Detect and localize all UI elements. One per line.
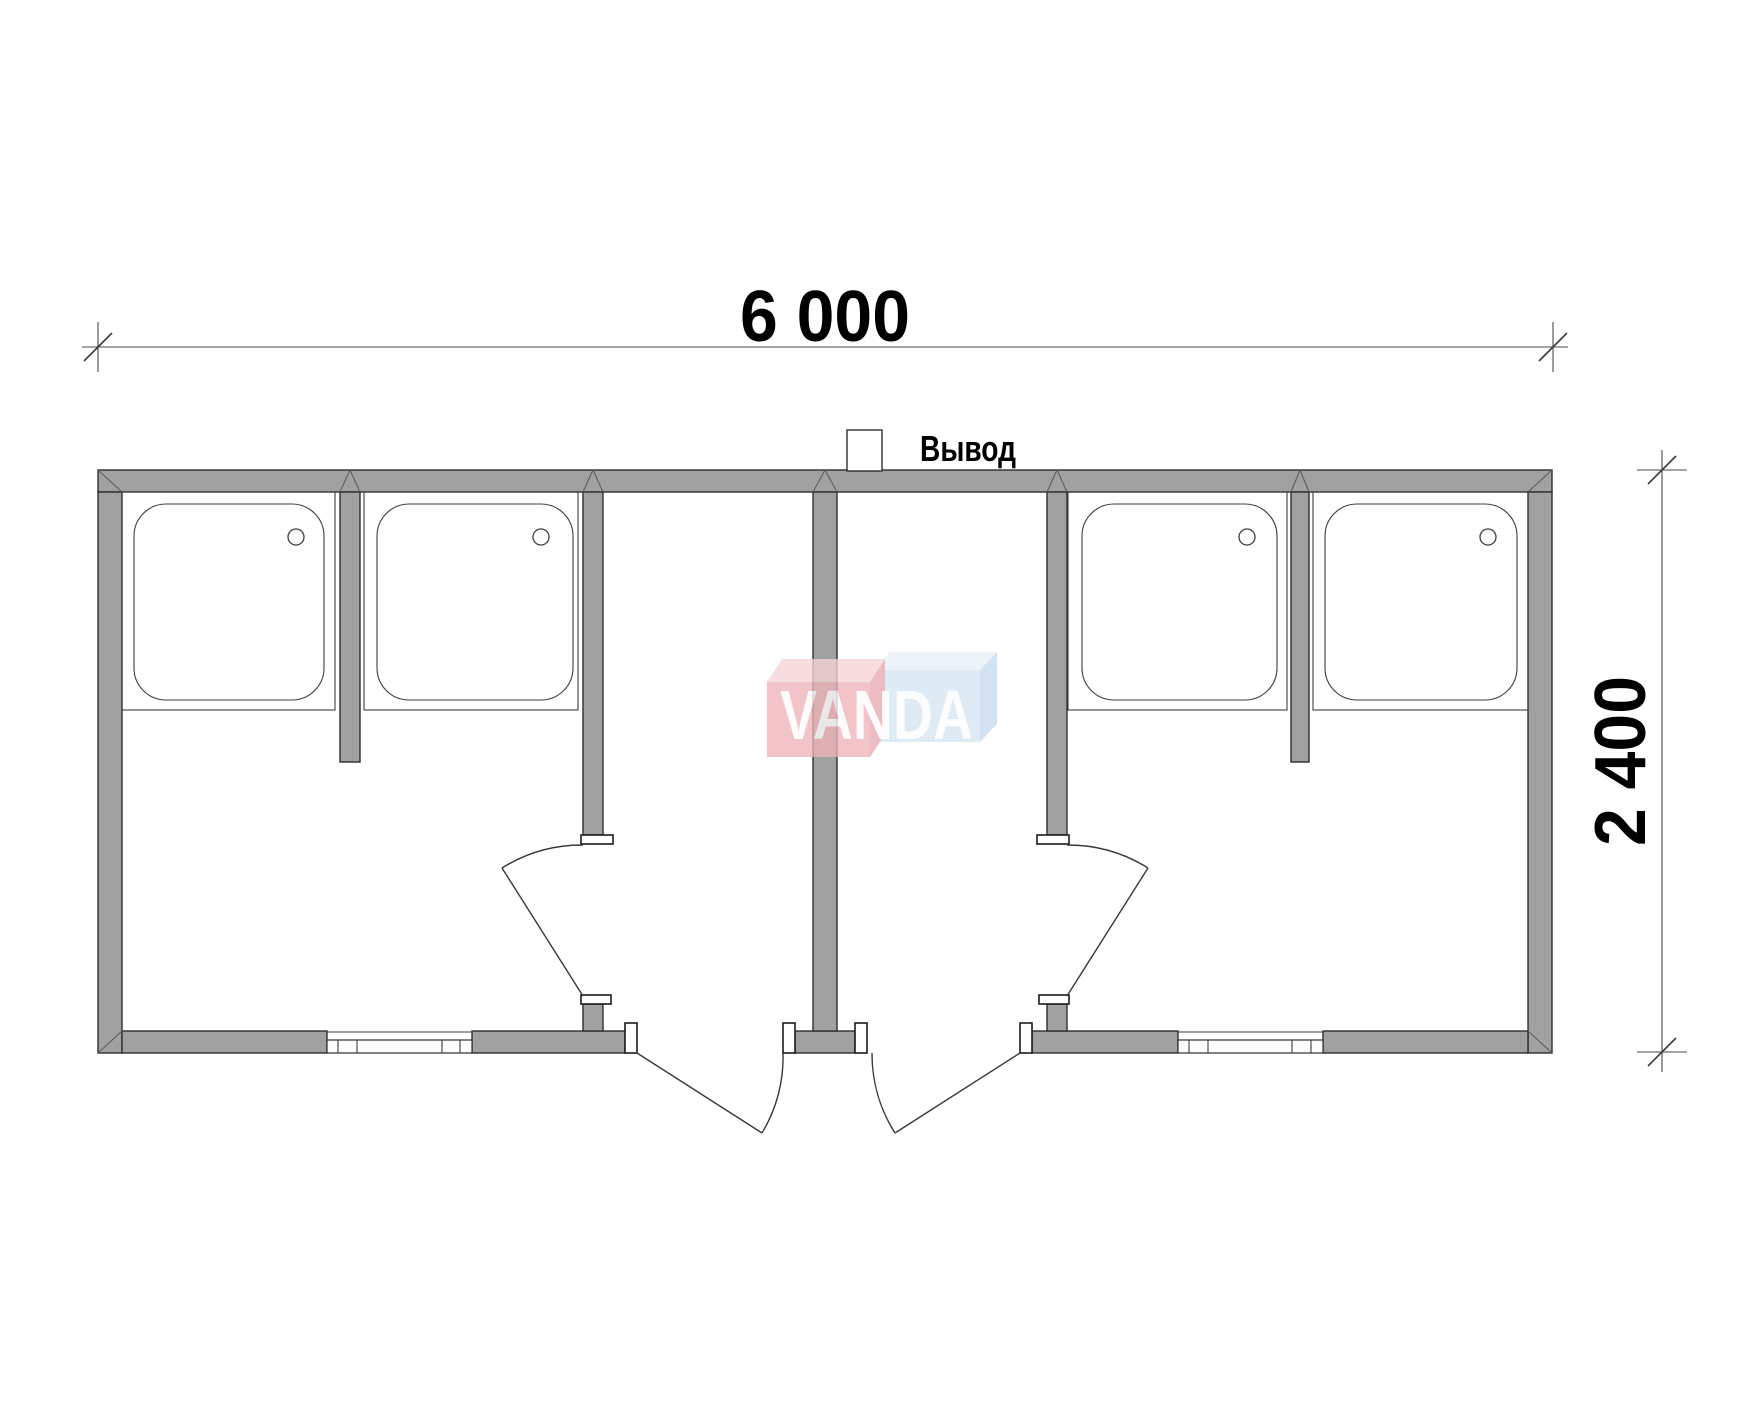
door-exterior-right-arc [872,1053,895,1133]
jamb-exterior-right-hinge [1020,1023,1032,1053]
door-exterior-right-leaf [895,1053,1020,1133]
door-exterior-left [637,1053,783,1133]
wall-partition-right-stub [1047,1004,1067,1031]
wall-shower-stub-right [1291,492,1309,762]
wall-right [1528,492,1552,1053]
wall-partition-right [1047,492,1067,835]
drain-icon-4 [1480,529,1496,545]
floor-plan-canvas: Вывод 6 000 2 400 VANDA [0,0,1763,1413]
logo-blue-top [873,652,997,670]
wall-bottom-seg2 [472,1031,625,1053]
wall-top [98,470,1552,492]
outlet-label: Вывод [920,428,1016,469]
dimension-height: 2 400 [1581,450,1687,1072]
wall-central [813,492,837,1031]
drain-icon-2 [533,529,549,545]
outlet: Вывод [847,428,1016,471]
door-exterior-left-leaf [637,1053,762,1133]
door-interior-left-arc [502,845,583,868]
jamb-interior-right-bottom [1039,995,1069,1004]
wall-bottom-seg4 [1032,1031,1178,1053]
wall-bottom-seg5 [1323,1031,1528,1053]
wall-bottom-seg3 [795,1031,855,1053]
floor-plan-drawing: Вывод 6 000 2 400 VANDA [0,0,1763,1413]
drain-icon-3 [1239,529,1255,545]
window-left-frame [327,1040,472,1053]
wall-bottom-seg1 [122,1031,327,1053]
door-interior-left [502,845,583,996]
jamb-exterior-right-strike [855,1023,867,1053]
drain-icon-1 [288,529,304,545]
door-interior-right-arc [1067,845,1148,868]
jamb-interior-right-top [1037,835,1069,844]
wall-partition-left-stub [583,1004,603,1031]
door-exterior-left-arc [762,1053,783,1133]
vanda-watermark: VANDA [767,652,997,757]
jamb-exterior-left-hinge [625,1023,637,1053]
jamb-exterior-left-strike [783,1023,795,1053]
dimension-width: 6 000 [82,277,1568,372]
window-right-frame [1178,1040,1323,1053]
dimension-height-value: 2 400 [1581,676,1661,846]
door-interior-right [1067,845,1148,996]
door-exterior-right [872,1053,1020,1133]
wall-shower-stub-left [340,492,360,762]
door-interior-left-leaf [502,868,583,996]
wall-partition-left [583,492,603,835]
jamb-interior-left-top [581,835,613,844]
dimension-width-value: 6 000 [740,277,910,357]
logo-wordmark: VANDA [780,676,973,754]
window-right [1178,1032,1323,1053]
wall-left [98,492,122,1053]
outlet-rect [847,430,882,471]
window-left [327,1032,472,1053]
jamb-interior-left-bottom [581,995,611,1004]
door-interior-right-leaf [1067,868,1148,996]
